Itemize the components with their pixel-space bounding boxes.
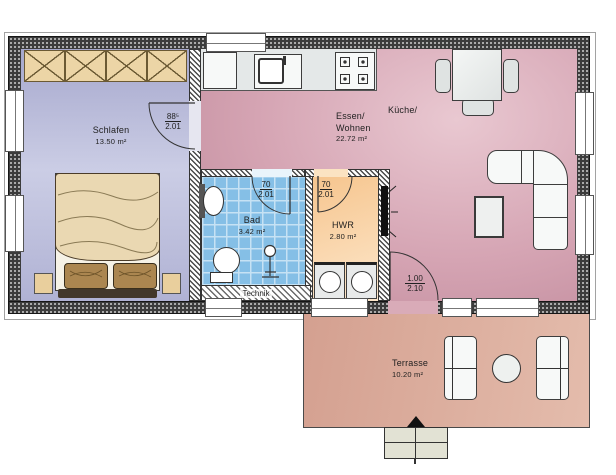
sink-bowl xyxy=(258,58,284,84)
pillow-left xyxy=(64,263,108,289)
dining-table xyxy=(452,49,502,101)
steps-mark xyxy=(414,458,416,464)
window-left-upper xyxy=(5,90,24,152)
toilet-bowl xyxy=(213,247,240,274)
dining-chair-left xyxy=(435,59,451,93)
door-dimension-bad: 70 2.01 xyxy=(250,180,282,199)
room-area: 2.80 m² xyxy=(320,232,366,242)
room-name: Terrasse xyxy=(392,358,428,370)
sofa-seam xyxy=(521,151,522,183)
label-bad: Bad 3.42 m² xyxy=(226,215,278,236)
entry-arrow-icon xyxy=(407,416,425,427)
technik-label: Technik xyxy=(240,289,271,298)
burner-icon xyxy=(340,57,350,67)
terrace-bench-right xyxy=(536,336,569,400)
burner-icon xyxy=(358,74,368,84)
pillow-right xyxy=(113,263,157,289)
wardrobe-cell xyxy=(65,50,106,82)
washer-left xyxy=(314,262,345,299)
floor-plan: Technik xyxy=(0,0,616,475)
room-area: 3.42 m² xyxy=(226,227,278,237)
label-essen-wohnen: Essen/ Wohnen 22.72 m² xyxy=(336,111,371,144)
window-left-lower xyxy=(5,195,24,252)
door-dimension-hwr: 70 2.01 xyxy=(310,180,342,199)
dining-chair-right xyxy=(503,59,519,93)
room-name: Küche/ xyxy=(388,105,417,117)
room-name: Essen/ xyxy=(336,111,371,123)
nightstand-left xyxy=(34,273,53,294)
wardrobe-cell xyxy=(24,50,65,82)
wardrobe-cell xyxy=(106,50,147,82)
window-kitchen xyxy=(206,33,266,52)
bad-door-opening xyxy=(252,169,292,177)
door-dimension-schlafen: 88⁵ 2.01 xyxy=(153,112,193,131)
room-area: 13.50 m² xyxy=(79,137,143,147)
terrace-door-opening xyxy=(388,301,438,314)
washer-drum-icon xyxy=(319,271,341,293)
label-terrasse: Terrasse 10.20 m² xyxy=(392,358,428,379)
room-name: Schlafen xyxy=(79,125,143,137)
sofa-seam xyxy=(534,217,567,218)
terrace-table xyxy=(492,354,521,383)
washer-drum-icon xyxy=(351,271,373,293)
burner-icon xyxy=(340,74,350,84)
tv xyxy=(381,186,388,236)
room-area: 22.72 m² xyxy=(336,134,371,144)
nightstand-right xyxy=(162,273,181,294)
fridge xyxy=(203,52,237,89)
door-dimension-terrasse: 1.00 2.10 xyxy=(398,274,432,293)
terrace-bench-left xyxy=(444,336,477,400)
hwr-door-opening xyxy=(314,169,348,177)
bath-sink xyxy=(203,186,224,216)
window-right-upper xyxy=(575,92,594,155)
coffee-table xyxy=(474,196,504,238)
window-bottom-living-2 xyxy=(476,298,539,317)
bedroom-living-wall xyxy=(189,49,201,301)
room-area: 10.20 m² xyxy=(392,370,428,380)
bed-blanket xyxy=(55,173,160,261)
stove xyxy=(335,52,375,90)
label-hwr: HWR 2.80 m² xyxy=(320,220,366,241)
label-schlafen: Schlafen 13.50 m² xyxy=(79,125,143,146)
burner-icon xyxy=(358,57,368,67)
sofa-right-arm xyxy=(533,184,568,250)
bed-headboard xyxy=(58,289,157,298)
bench-seam xyxy=(445,368,476,369)
wardrobe-cell xyxy=(147,50,187,82)
sofa-top-arm xyxy=(487,150,539,184)
window-bottom-bath xyxy=(205,298,242,317)
wardrobe xyxy=(24,50,187,82)
window-bottom-living-1 xyxy=(442,298,472,317)
step-edge xyxy=(385,442,447,443)
room-name: Wohnen xyxy=(336,123,371,135)
bench-seam xyxy=(537,368,568,369)
toilet-tank xyxy=(210,272,233,283)
steps xyxy=(384,427,448,459)
faucet-icon xyxy=(283,56,286,65)
washer-right xyxy=(346,262,377,299)
step-edge xyxy=(415,428,416,458)
window-bottom-hwr xyxy=(311,298,368,317)
room-name: Bad xyxy=(226,215,278,227)
room-name: HWR xyxy=(320,220,366,232)
window-right-lower xyxy=(575,195,594,255)
label-kueche: Küche/ xyxy=(388,105,417,117)
